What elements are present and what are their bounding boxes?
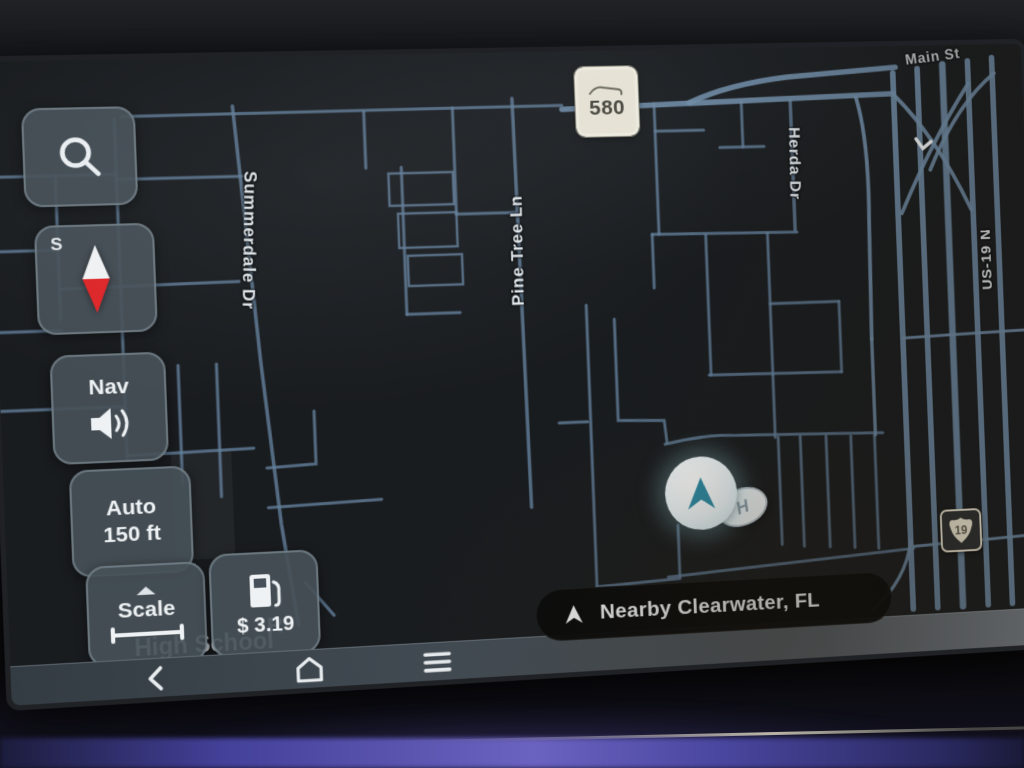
compass-needle-icon: [81, 244, 111, 313]
street-label-summerdale: Summerdale Dr: [238, 171, 261, 310]
scale-ruler-icon: [108, 624, 186, 645]
street-label-pine-tree: Pine Tree Ln: [507, 195, 529, 306]
compass-button[interactable]: S: [34, 223, 158, 336]
scale-label: Scale: [117, 596, 175, 624]
search-icon: [55, 132, 105, 181]
zoom-mode-label: Auto: [106, 494, 157, 521]
scale-button[interactable]: Scale: [85, 561, 208, 668]
infotainment-screen: Summerdale Dr Pine Tree Ln Herda Dr US-1…: [0, 44, 1024, 706]
gas-pump-icon: [246, 570, 282, 611]
compass-cardinal-label: S: [50, 235, 63, 256]
street-label-us19n: US-19 N: [977, 229, 995, 291]
navigation-arrow-icon: [562, 602, 586, 626]
menu-hamburger-icon[interactable]: [423, 650, 452, 674]
route-shield-us-19: 19: [940, 508, 983, 553]
ambient-light-strip: [0, 738, 1024, 768]
fuel-price-button[interactable]: $ 3.19: [208, 549, 321, 659]
map-search-button[interactable]: [21, 106, 139, 208]
nav-audio-button[interactable]: Nav: [49, 352, 169, 466]
fuel-price-label: $ 3.19: [237, 612, 295, 639]
us-route-shield-icon: 19: [946, 515, 975, 546]
home-icon[interactable]: [293, 654, 327, 684]
nearby-location-label: Nearby Clearwater, FL: [600, 589, 821, 625]
nav-audio-label: Nav: [88, 375, 129, 401]
zoom-range-label: 150 ft: [103, 521, 161, 549]
photo-of-car-display: { "map": { "road_labels": { "summerdale"…: [0, 0, 1024, 768]
navigation-arrow-icon: [679, 470, 723, 516]
florida-outline-icon: [588, 83, 626, 97]
route-shield-fl-580-number: 580: [589, 96, 626, 121]
route-shield-us-19-number: 19: [955, 523, 968, 537]
route-shield-fl-580: 580: [574, 66, 639, 137]
street-label-herda: Herda Dr: [784, 127, 803, 200]
speaker-icon: [87, 405, 132, 442]
triangle-up-icon: [136, 586, 155, 595]
zoom-level-button[interactable]: Auto 150 ft: [69, 465, 195, 578]
